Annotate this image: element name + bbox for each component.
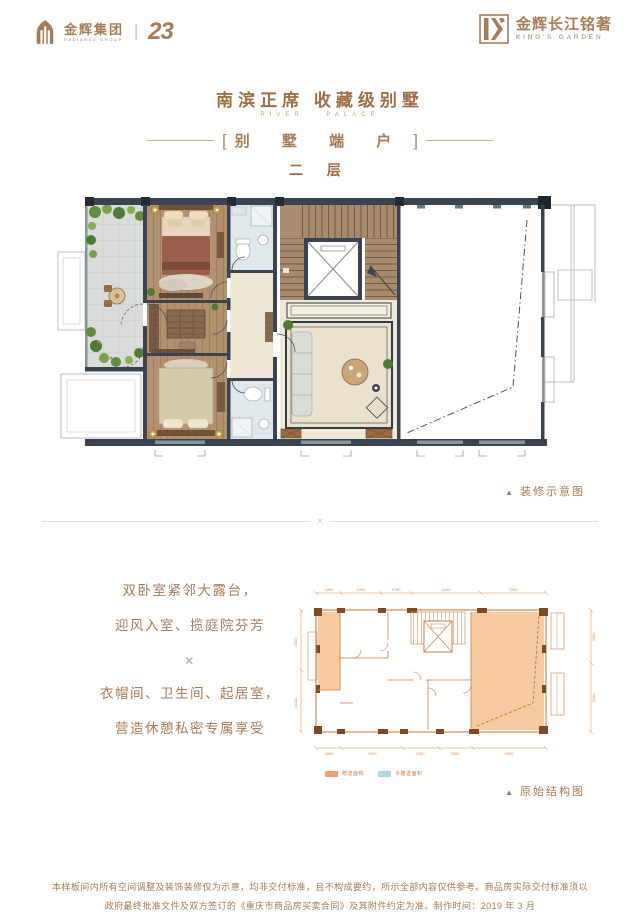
selling-point-line-1: 双卧室紧邻大露台， bbox=[60, 584, 320, 598]
dim-top-2: 2400 bbox=[357, 587, 367, 592]
legend-swatch-half-bonus bbox=[378, 771, 391, 777]
bathroom-1 bbox=[230, 205, 273, 270]
stair-core bbox=[280, 205, 397, 300]
dim-bottom-4: 2050 bbox=[451, 751, 461, 756]
selling-point-line-3: 衣帽间、卫生间、起居室， bbox=[60, 687, 320, 701]
decorated-plan-caption-text: 装修示意图 bbox=[520, 486, 585, 498]
dim-bottom-5: 4900 bbox=[505, 751, 515, 756]
dim-top-5: 7200 bbox=[509, 587, 519, 592]
dim-top-1: 1800 bbox=[325, 587, 335, 592]
disclaimer-line-2: 政府最终批准文件及双方签订的《重庆市商品房买卖合同》及其附件约定为准。制作时间：… bbox=[20, 897, 620, 916]
dim-bottom-1: 1800 bbox=[325, 751, 335, 756]
schematic-stair-core bbox=[411, 612, 465, 652]
void-room bbox=[401, 205, 541, 439]
anniversary-mark: 23 bbox=[148, 18, 173, 46]
legend-label-bonus: 赠送面积 bbox=[342, 770, 364, 777]
original-structure-plan: 1800 2400 1750 4400 7200 1800 4400 2450 … bbox=[293, 585, 600, 770]
selling-points-ornament: ✕ bbox=[60, 654, 320, 668]
legend-label-half-bonus: 半赠送面积 bbox=[395, 770, 423, 777]
bedroom-2 bbox=[147, 355, 227, 439]
dim-left-1: 4300 bbox=[293, 637, 298, 647]
living-room bbox=[277, 300, 397, 439]
unit-type-banner: [ 别 墅 端 户 ] bbox=[147, 130, 493, 151]
project-name-cn: 金辉长江铭著 bbox=[516, 17, 612, 32]
bathroom-2 bbox=[230, 380, 273, 439]
dim-bottom-2: 4400 bbox=[368, 751, 378, 756]
disclaimer-line-1: 本样板间内所有空间调整及装饰装修仅为示意，均非交付标准，且不构成要约，所示全部内… bbox=[20, 878, 620, 897]
section-divider: ✕ bbox=[42, 516, 598, 527]
decorated-plan-caption: ▲装修示意图 bbox=[505, 483, 585, 499]
radiance-shield-icon bbox=[34, 19, 56, 45]
page-subtitle: RIVER PALACE bbox=[0, 112, 640, 118]
original-plan-caption-text: 原始结构图 bbox=[520, 786, 585, 798]
floor-label: 二 层 bbox=[0, 160, 640, 180]
walk-in-closet bbox=[147, 303, 227, 355]
kings-garden-icon bbox=[479, 14, 509, 44]
decorated-floorplan bbox=[55, 192, 600, 464]
dim-top-4: 4400 bbox=[442, 587, 452, 592]
project-name-en: KING'S GARDEN bbox=[516, 35, 612, 42]
banner-line-right bbox=[426, 140, 493, 141]
original-plan-caption: ▲原始结构图 bbox=[505, 783, 585, 799]
caption-arrow-icon: ▲ bbox=[505, 488, 515, 497]
divider-ornament: ✕ bbox=[311, 516, 329, 527]
selling-point-line-2: 迎风入室、揽庭院芬芳 bbox=[60, 619, 320, 633]
bracket-right: ] bbox=[405, 131, 426, 151]
logo-separator: | bbox=[134, 23, 138, 41]
page-title: 南滨正席 收藏级别墅 bbox=[0, 86, 640, 111]
bedroom-1 bbox=[147, 205, 227, 300]
group-name-en: RADIANCE GROUP bbox=[64, 38, 124, 42]
legend-item-bonus: 赠送面积 bbox=[325, 770, 364, 777]
hallway bbox=[230, 270, 273, 380]
dim-bottom-3: 2450 bbox=[416, 751, 426, 756]
divider-line-left bbox=[42, 521, 311, 522]
dim-left-2: 5100 bbox=[293, 698, 298, 708]
divider-line-right bbox=[329, 521, 598, 522]
disclaimer: 本样板间内所有空间调整及装饰装修仅为示意，均非交付标准，且不构成要约，所示全部内… bbox=[20, 878, 620, 916]
poster-page: 金辉集团 RADIANCE GROUP | 23 金辉长江铭著 KING'S G… bbox=[0, 0, 640, 920]
dim-right-1: 4600 bbox=[591, 632, 596, 642]
banner-line-left bbox=[147, 140, 214, 141]
unit-type-label: 别 墅 端 户 bbox=[235, 130, 406, 151]
dim-top-3: 1750 bbox=[392, 587, 402, 592]
bracket-left: [ bbox=[214, 131, 235, 151]
schematic-legend: 赠送面积 半赠送面积 bbox=[325, 770, 423, 777]
kings-garden-logo: 金辉长江铭著 KING'S GARDEN bbox=[479, 14, 612, 44]
caption-arrow-icon-2: ▲ bbox=[505, 788, 515, 797]
legend-item-half-bonus: 半赠送面积 bbox=[378, 770, 423, 777]
legend-swatch-bonus bbox=[325, 771, 338, 777]
selling-point-line-4: 营造休憩私密专属享受 bbox=[60, 722, 320, 736]
selling-points: 双卧室紧邻大露台， 迎风入室、揽庭院芬芳 ✕ 衣帽间、卫生间、起居室， 营造休憩… bbox=[60, 584, 320, 757]
terrace bbox=[85, 204, 147, 372]
group-name-cn: 金辉集团 bbox=[64, 23, 124, 36]
radiance-group-logo: 金辉集团 RADIANCE GROUP | 23 bbox=[34, 18, 173, 46]
dim-right-2: 3300 bbox=[591, 693, 596, 703]
schematic-door-arcs bbox=[353, 643, 471, 696]
